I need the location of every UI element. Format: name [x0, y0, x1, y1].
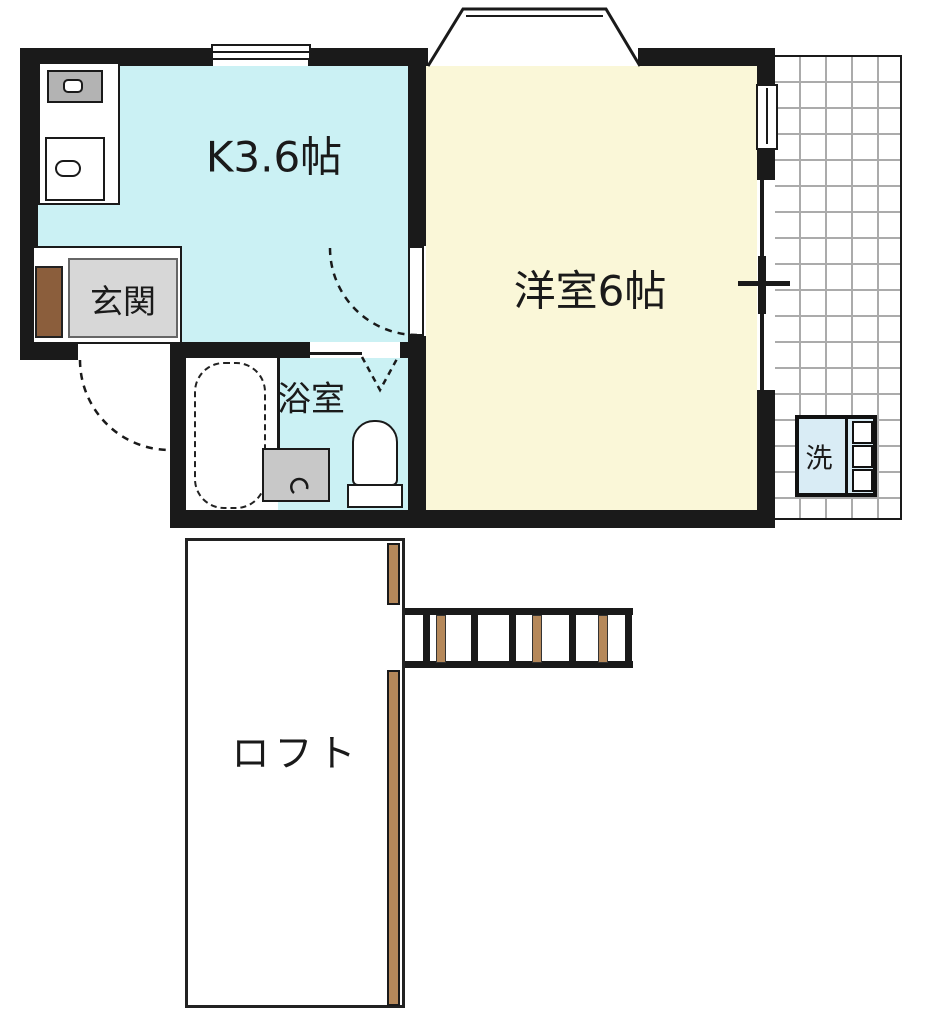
- western-room-side-window: [756, 84, 778, 150]
- wall-bottom: [170, 510, 775, 528]
- ladder-rung-7: [598, 615, 608, 663]
- ladder-rung-3: [471, 615, 478, 661]
- wall-divider-lower: [408, 336, 426, 528]
- kitchen-window-mullion: [213, 51, 309, 53]
- kitchen-door-leaf: [408, 246, 424, 336]
- washer-label: 洗: [806, 437, 833, 476]
- washer-cell-3: [852, 469, 873, 492]
- washer-divider: [845, 419, 848, 493]
- loft-wood-strip-upper: [387, 543, 400, 605]
- wall-entrance-bottom: [20, 342, 78, 360]
- loft-label: ロフト: [231, 723, 360, 778]
- ladder-rung-8: [625, 615, 632, 661]
- ladder-rung-1: [423, 615, 430, 661]
- wall-top-right: [638, 48, 775, 66]
- ladder-rung-6: [569, 615, 576, 661]
- loft-wood-strip-lower: [387, 670, 400, 1006]
- washer-cell-1: [852, 421, 873, 444]
- ladder-rung-5: [532, 615, 542, 663]
- bay-window-fill: [428, 9, 640, 66]
- stove-unit: [47, 70, 103, 103]
- bathroom-vanity: [262, 448, 330, 502]
- side-window-mullion: [766, 88, 768, 144]
- wall-divider-upper: [408, 48, 426, 246]
- sink-basin-icon: [55, 160, 81, 177]
- stove-burner-icon: [63, 79, 83, 93]
- entrance-door-arc: [80, 360, 170, 450]
- wall-bathroom-top-a: [186, 342, 310, 358]
- wall-bathroom-top-b: [400, 342, 408, 358]
- bathtub: [194, 362, 266, 509]
- kitchen-window: [211, 44, 311, 60]
- wall-bathroom-left: [170, 342, 186, 528]
- entrance-door: [35, 266, 63, 338]
- toilet-tank: [347, 484, 403, 508]
- washer-cell-2: [852, 445, 873, 468]
- ladder-rung-4: [509, 615, 516, 661]
- bay-window-outline: [428, 9, 640, 66]
- kitchen-sink-unit: [45, 137, 105, 201]
- genkan-label: 玄関: [90, 275, 156, 323]
- wall-right-lower: [757, 390, 775, 528]
- ladder-rung-2: [436, 615, 446, 663]
- floorplan-canvas: 玄関 洗 ロフト: [0, 0, 927, 1024]
- kitchen-label: K3.6帖: [206, 124, 342, 185]
- western-room-label: 洋室6帖: [514, 258, 667, 319]
- bathroom-label: 浴室: [277, 372, 345, 421]
- ladder-rail-top: [405, 608, 633, 615]
- bathroom-door-threshold: [310, 352, 362, 355]
- sliding-door-cross-horizontal: [738, 281, 790, 286]
- toilet-bowl: [352, 420, 398, 486]
